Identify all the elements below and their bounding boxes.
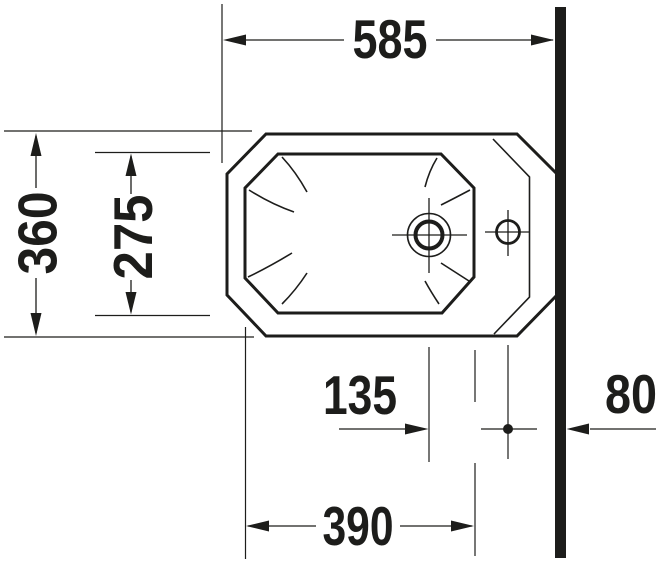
dim-390-label: 390 [323,495,394,557]
dimension-front-to-drain: 390 [246,327,476,559]
slope-line-top-right-a [425,158,437,187]
drain [392,198,467,273]
dim-80-arrow-left [567,424,590,435]
bidet-plan-view-drawing: 585 360 275 135 [0,0,659,567]
slope-line-bottom-left-b [282,273,307,304]
dim-390-arrow-right [451,521,474,532]
slope-line-bottom-left-a [248,253,292,277]
dimension-overall-depth: 585 [222,4,554,163]
basin-inner-octagon [245,154,474,313]
dim-360-arrow-top [31,133,42,156]
dim-135-arrow-right [405,424,429,435]
tap-hole [485,210,530,256]
fixture-body [227,134,557,336]
dim-585-arrow-left [223,35,246,46]
dimension-taphole-to-wall: 80 [567,363,658,435]
dim-585-arrow-right [531,35,554,46]
dim-360-label: 360 [7,192,69,275]
slope-line-top-right-b [441,190,470,205]
slope-line-bottom-right-b [441,263,469,281]
slope-line-top-left-a [282,157,307,192]
slope-line-bottom-right-a [425,281,439,304]
slope-line-top-left-b [249,190,294,212]
dimension-basin-width: 275 [95,153,210,316]
wall-line [555,7,566,558]
taphole-reference-dot [503,424,513,434]
dim-360-arrow-bottom [31,313,42,336]
dim-390-arrow-left [246,521,269,532]
taphole-reference-point [481,345,537,459]
dim-80-label: 80 [605,363,657,425]
technical-drawing-page: 585 360 275 135 [0,0,659,567]
basin-slope-lines [248,157,470,304]
dim-275-arrow-bottom [126,292,137,315]
dim-585-label: 585 [353,8,428,70]
dim-135-label: 135 [323,364,397,426]
dim-275-label: 275 [102,195,164,280]
dim-275-arrow-top [126,154,137,177]
dimension-drain-to-taphole: 135 [323,345,537,462]
